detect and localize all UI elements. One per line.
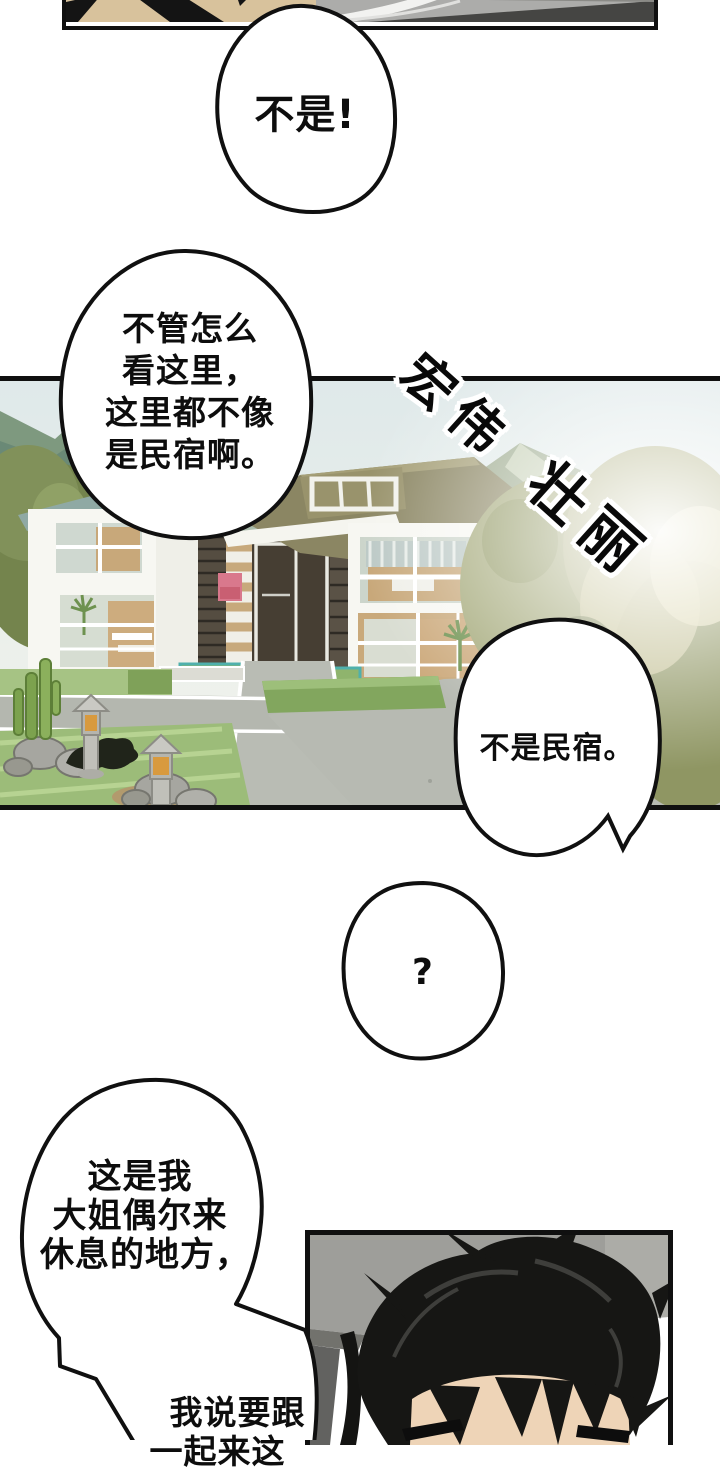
bubble-doubt-text: 不管怎么 看这里， 这里都不像 是民宿啊。	[66, 308, 314, 476]
comic-page: { "comic": { "bubble_exclaim": "不是!", "b…	[0, 0, 720, 1440]
bubble-doubt-line: 是民宿啊。	[66, 434, 314, 476]
panel-top-art	[66, 0, 654, 22]
bubble-doubt-line: 这里都不像	[66, 392, 314, 434]
bubble-explain-cont-clipped: 一起来这	[130, 1432, 305, 1472]
panel-top-sliver	[62, 0, 658, 30]
bubble-question-glyph: ?	[343, 952, 503, 993]
bubble-explain-cont-line: 我说要跟	[155, 1393, 320, 1433]
bubble-explain-text: 这是我 大姐偶尔来 休息的地方，	[40, 1158, 240, 1275]
bubble-doubt-line: 不管怎么	[66, 308, 314, 350]
bubble-doubt-line: 看这里，	[66, 350, 314, 392]
bubble-deny-text: 不是民宿。	[452, 723, 662, 767]
bubble-explain-line: 休息的地方，	[40, 1236, 240, 1275]
bubble-exclaim-text: 不是!	[212, 82, 398, 140]
bubble-explain-line: 这是我	[40, 1158, 240, 1197]
bubble-explain-cont-text: 我说要跟	[155, 1393, 320, 1433]
panel-character	[305, 1230, 673, 1445]
bubble-explain-line: 大姐偶尔来	[40, 1197, 240, 1236]
bubble-question-text: ?	[343, 952, 503, 993]
character-art	[310, 1235, 668, 1445]
bubble-deny-line: 不是民宿。	[452, 723, 662, 767]
bubble-exclaim-line: 不是!	[212, 82, 398, 140]
bubble-explain-cont-line: 一起来这	[130, 1432, 305, 1472]
